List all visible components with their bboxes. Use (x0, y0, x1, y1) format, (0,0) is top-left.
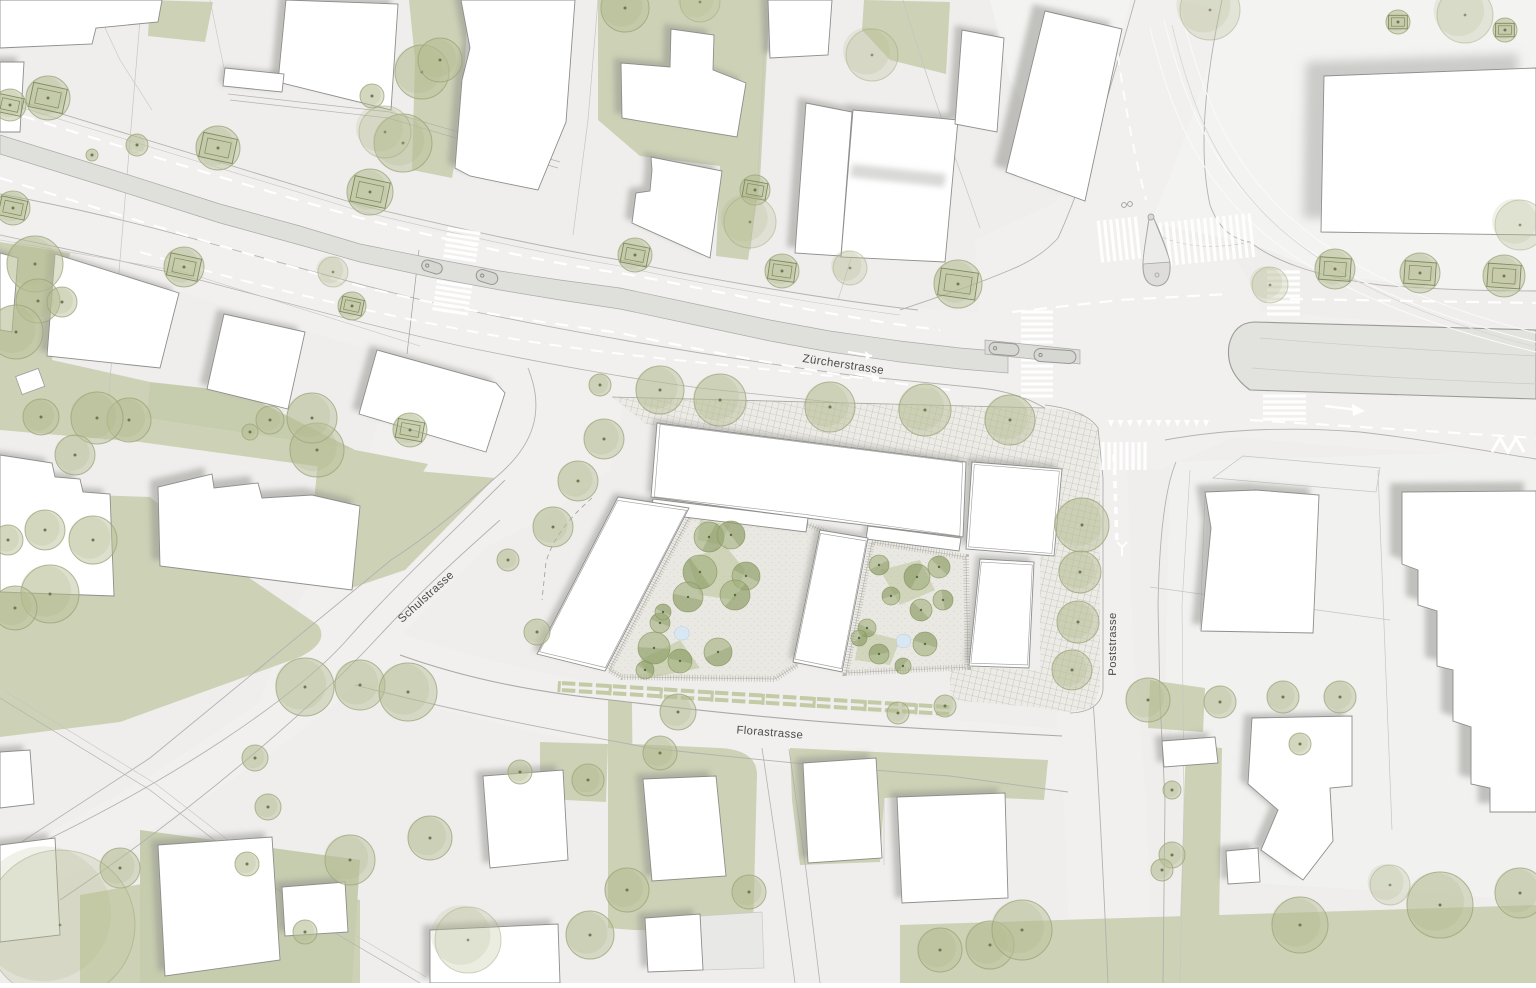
svg-text:Poststrasse: Poststrasse (1107, 612, 1119, 675)
